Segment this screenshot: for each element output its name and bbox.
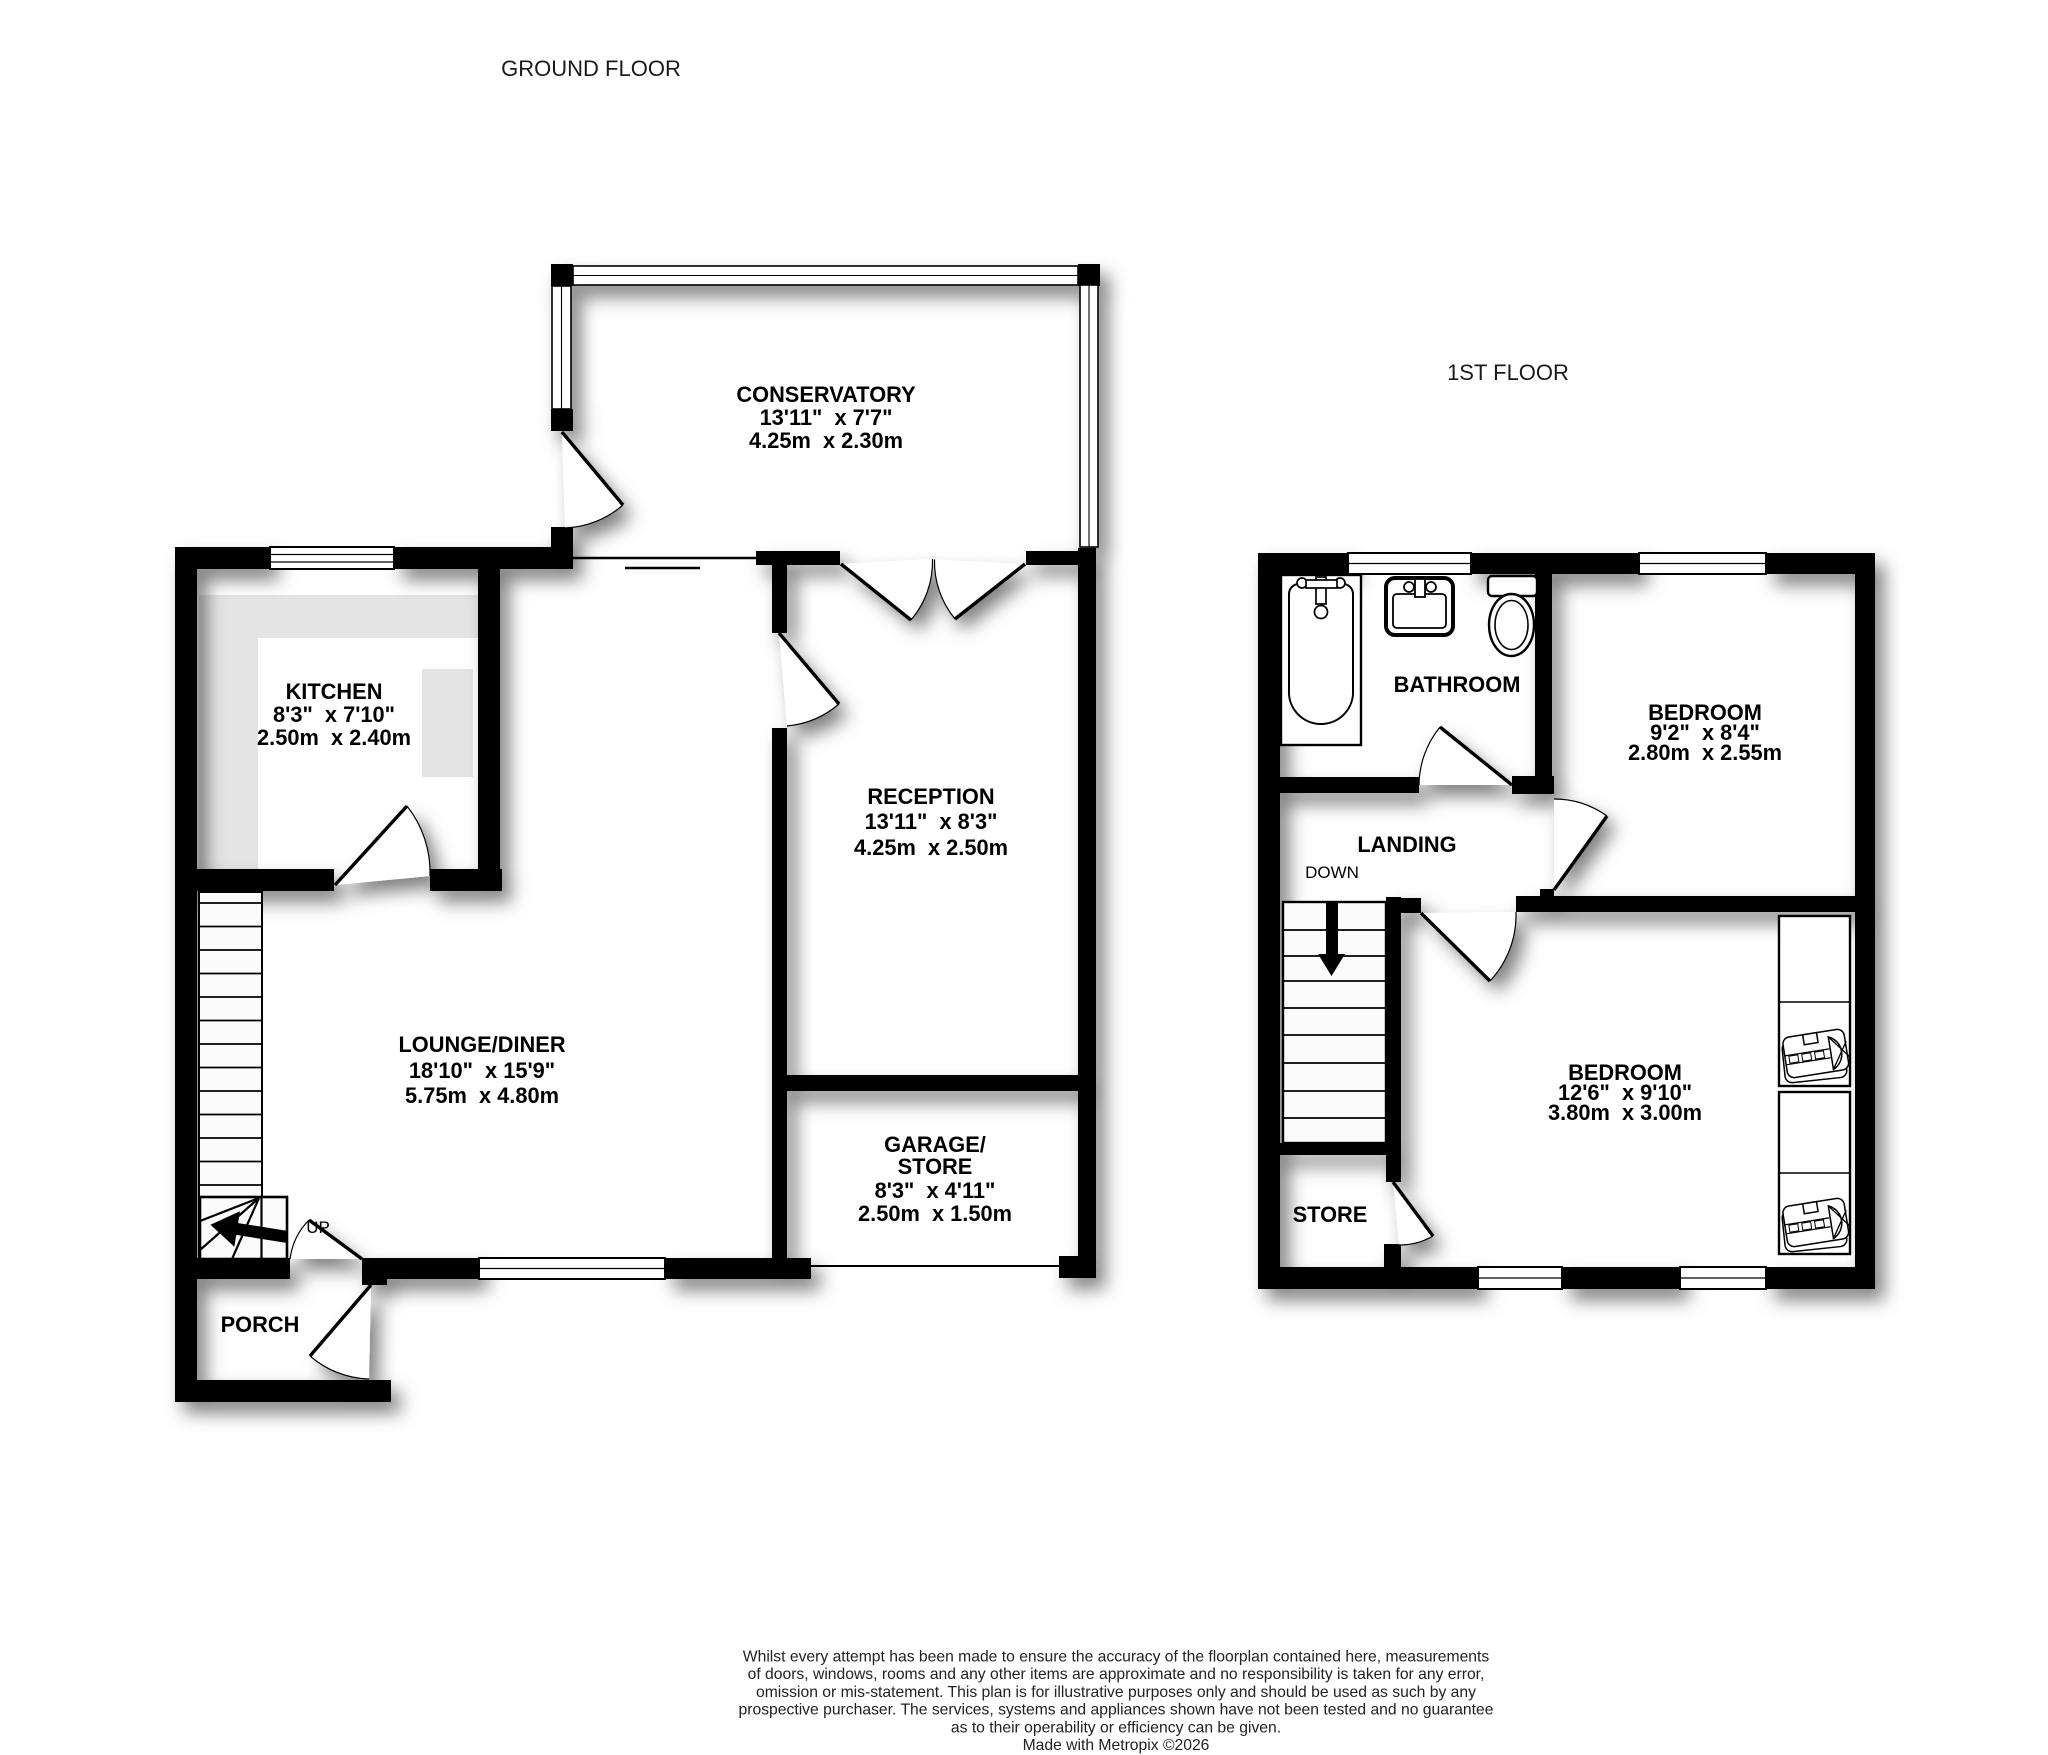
svg-text:omission or mis-statement. Thi: omission or mis-statement. This plan is …: [756, 1684, 1476, 1701]
svg-text:4.25m x 2.30m: 4.25m x 2.30m: [749, 428, 903, 453]
svg-text:LOUNGE/DINER: LOUNGE/DINER: [398, 1032, 565, 1057]
svg-text:of doors, windows, rooms and a: of doors, windows, rooms and any other i…: [748, 1666, 1485, 1683]
svg-text:CONSERVATORY: CONSERVATORY: [736, 382, 916, 407]
svg-text:GROUND FLOOR: GROUND FLOOR: [501, 56, 681, 81]
svg-text:18'10" x 15'9": 18'10" x 15'9": [409, 1058, 555, 1083]
svg-text:Made with Metropix ©2026: Made with Metropix ©2026: [1023, 1737, 1210, 1754]
svg-text:as to their operability or eff: as to their operability or efficiency ca…: [951, 1719, 1281, 1736]
svg-text:8'3" x 7'10": 8'3" x 7'10": [273, 702, 395, 727]
svg-text:LANDING: LANDING: [1357, 832, 1456, 857]
svg-text:UP: UP: [306, 1218, 330, 1237]
svg-text:8'3" x 4'11": 8'3" x 4'11": [875, 1178, 996, 1203]
svg-text:1ST FLOOR: 1ST FLOOR: [1447, 360, 1569, 385]
svg-text:13'11" x 8'3": 13'11" x 8'3": [865, 809, 998, 834]
svg-text:3.80m x 3.00m: 3.80m x 3.00m: [1548, 1100, 1702, 1125]
svg-text:STORE: STORE: [1293, 1202, 1368, 1227]
svg-text:PORCH: PORCH: [221, 1312, 300, 1337]
svg-text:2.80m x 2.55m: 2.80m x 2.55m: [1628, 740, 1782, 765]
svg-text:2.50m x 2.40m: 2.50m x 2.40m: [257, 725, 411, 750]
svg-text:STORE: STORE: [898, 1154, 973, 1179]
svg-text:Whilst every attempt has been: Whilst every attempt has been made to en…: [743, 1649, 1490, 1666]
svg-text:prospective purchaser. The ser: prospective purchaser. The services, sys…: [739, 1702, 1494, 1719]
svg-text:RECEPTION: RECEPTION: [867, 784, 994, 809]
svg-text:4.25m x 2.50m: 4.25m x 2.50m: [854, 835, 1008, 860]
svg-text:13'11" x 7'7": 13'11" x 7'7": [760, 405, 893, 430]
svg-text:5.75m x 4.80m: 5.75m x 4.80m: [405, 1083, 559, 1108]
svg-text:BATHROOM: BATHROOM: [1394, 672, 1521, 697]
svg-text:DOWN: DOWN: [1305, 863, 1359, 882]
svg-text:KITCHEN: KITCHEN: [286, 679, 383, 704]
svg-text:2.50m x 1.50m: 2.50m x 1.50m: [858, 1201, 1012, 1226]
